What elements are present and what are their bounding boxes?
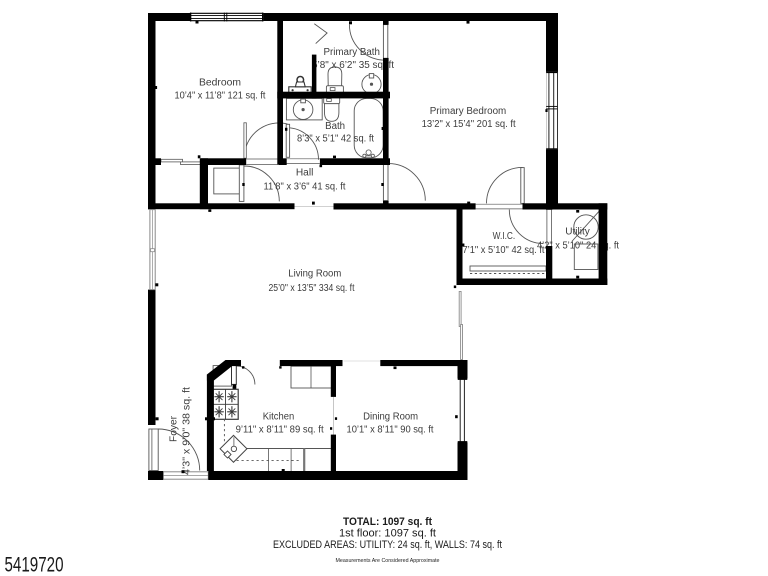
svg-text:4’3" x 9’0" 38 sq. ft: 4’3" x 9’0" 38 sq. ft [182, 387, 193, 475]
svg-text:Bedroom: Bedroom [199, 77, 241, 88]
svg-text:7’1" x 5’10" 42 sq. ft: 7’1" x 5’10" 42 sq. ft [463, 245, 545, 256]
svg-text:Dining Room: Dining Room [363, 411, 418, 422]
svg-text:Hall: Hall [296, 168, 314, 179]
svg-text:Kitchen: Kitchen [263, 411, 295, 422]
svg-text:11’8" x 3’6" 41 sq. ft: 11’8" x 3’6" 41 sq. ft [264, 181, 346, 192]
svg-text:1st floor: 1097 sq. ft: 1st floor: 1097 sq. ft [339, 528, 436, 540]
svg-text:W.I.C.: W.I.C. [493, 231, 516, 242]
svg-text:5419720: 5419720 [5, 554, 64, 576]
svg-text:Primary Bath: Primary Bath [323, 47, 380, 58]
svg-text:10’1" x 8’11" 90 sq. ft: 10’1" x 8’11" 90 sq. ft [347, 424, 434, 435]
svg-text:Measurements Are Considered Ap: Measurements Are Considered Approximate [336, 558, 440, 564]
svg-text:25’0" x 13’5" 334 sq. ft: 25’0" x 13’5" 334 sq. ft [269, 283, 355, 294]
svg-text:13’2" x 15’4" 201 sq. ft: 13’2" x 15’4" 201 sq. ft [422, 119, 516, 130]
svg-text:5’8" x 6’2" 35 sq. ft: 5’8" x 6’2" 35 sq. ft [312, 60, 394, 71]
svg-text:Living Room: Living Room [288, 268, 341, 279]
svg-text:10’4" x 11’8" 121 sq. ft: 10’4" x 11’8" 121 sq. ft [175, 90, 266, 101]
svg-text:Primary Bedroom: Primary Bedroom [430, 106, 507, 117]
svg-text:9’11" x 8’11" 89 sq. ft: 9’11" x 8’11" 89 sq. ft [236, 424, 324, 435]
svg-text:Bath: Bath [325, 121, 345, 132]
svg-text:EXCLUDED AREAS: UTILITY: 24 sq: EXCLUDED AREAS: UTILITY: 24 sq. ft, WALL… [273, 539, 502, 551]
svg-text:Foyer: Foyer [169, 415, 180, 442]
svg-text:Utility: Utility [565, 226, 590, 237]
svg-text:8’3" x 5’1" 42 sq. ft: 8’3" x 5’1" 42 sq. ft [297, 134, 374, 145]
svg-text:TOTAL: 1097 sq. ft: TOTAL: 1097 sq. ft [343, 516, 432, 528]
